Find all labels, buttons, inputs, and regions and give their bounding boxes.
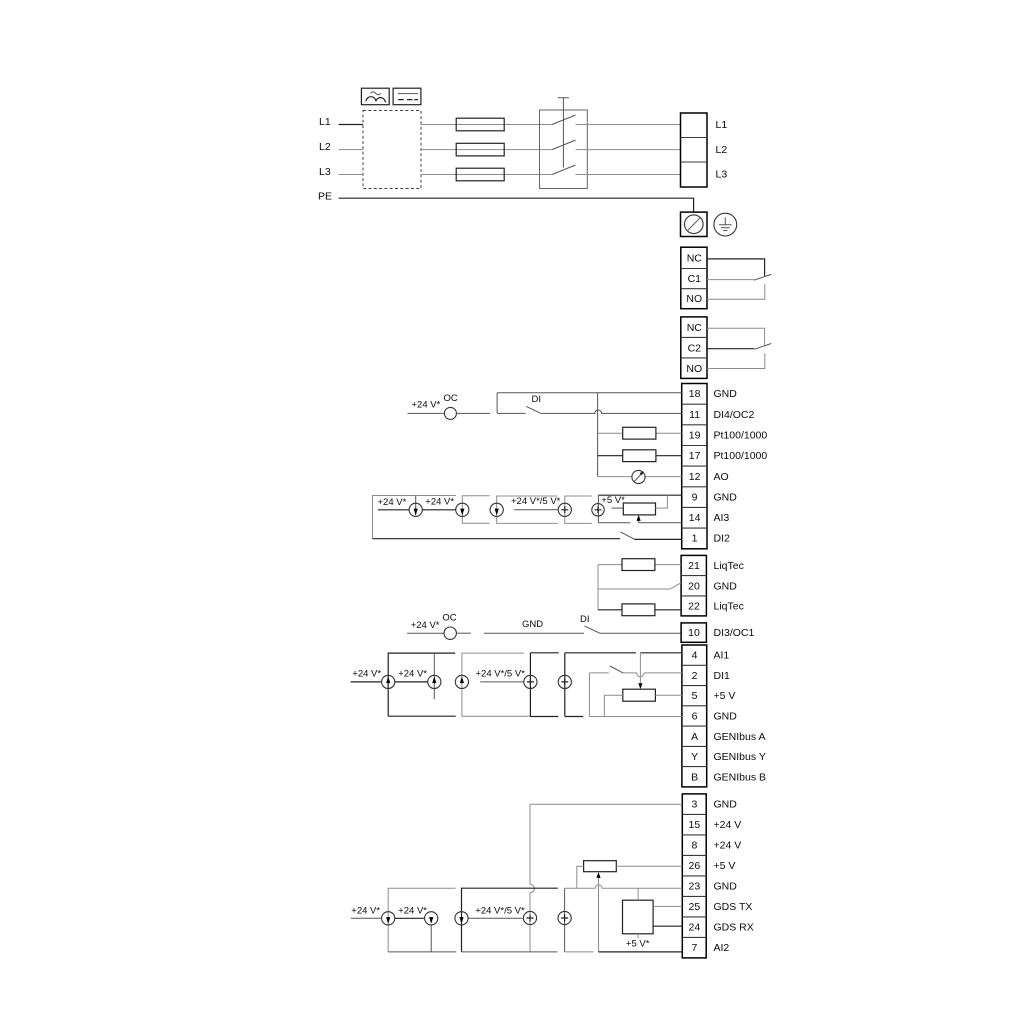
svg-text:+24 V*: +24 V* — [351, 906, 380, 917]
svg-text:17: 17 — [689, 450, 701, 462]
svg-text:+24 V*: +24 V* — [378, 497, 407, 508]
svg-text:GND: GND — [522, 619, 543, 630]
svg-text:2: 2 — [692, 670, 698, 682]
svg-text:+24 V: +24 V — [714, 819, 742, 831]
svg-text:+24 V*: +24 V* — [398, 906, 427, 917]
svg-text:DI1: DI1 — [714, 670, 731, 682]
svg-text:+24 V*: +24 V* — [398, 669, 427, 680]
svg-text:GDS RX: GDS RX — [714, 922, 754, 934]
svg-text:L2: L2 — [319, 141, 331, 153]
svg-text:A: A — [691, 731, 698, 743]
svg-text:L1: L1 — [716, 119, 728, 131]
svg-text:B: B — [691, 771, 698, 783]
svg-text:L2: L2 — [716, 144, 728, 156]
svg-text:4: 4 — [692, 650, 698, 662]
svg-text:GENIbus Y: GENIbus Y — [714, 751, 766, 763]
svg-text:NC: NC — [687, 252, 703, 264]
svg-text:19: 19 — [689, 430, 701, 442]
svg-text:OC: OC — [444, 393, 458, 404]
svg-text:GENIbus A: GENIbus A — [714, 731, 766, 743]
svg-text:+5 V*: +5 V* — [626, 938, 650, 949]
svg-text:1: 1 — [692, 533, 698, 545]
svg-text:AI1: AI1 — [714, 650, 730, 662]
svg-text:20: 20 — [688, 580, 700, 592]
svg-text:5: 5 — [692, 690, 698, 702]
svg-text:GDS TX: GDS TX — [714, 901, 753, 913]
svg-text:8: 8 — [691, 840, 697, 852]
svg-text:OC: OC — [442, 613, 456, 624]
svg-text:25: 25 — [689, 901, 701, 913]
svg-text:L1: L1 — [319, 116, 331, 128]
svg-text:23: 23 — [689, 881, 701, 893]
svg-text:NO: NO — [686, 293, 702, 305]
svg-text:6: 6 — [692, 711, 698, 723]
svg-text:+24 V: +24 V — [714, 840, 742, 852]
svg-text:AO: AO — [714, 471, 729, 483]
svg-text:GND: GND — [714, 491, 738, 503]
svg-text:14: 14 — [689, 512, 701, 524]
svg-text:11: 11 — [689, 409, 700, 421]
svg-text:DI4/OC2: DI4/OC2 — [714, 409, 755, 421]
svg-text:PE: PE — [318, 191, 332, 203]
svg-text:GND: GND — [714, 799, 738, 811]
svg-text:+24 V*: +24 V* — [425, 496, 454, 507]
svg-text:+24 V*: +24 V* — [411, 620, 440, 631]
svg-text:22: 22 — [688, 601, 700, 613]
svg-text:18: 18 — [689, 388, 701, 400]
svg-text:L3: L3 — [319, 166, 331, 178]
svg-text:AI3: AI3 — [714, 512, 730, 524]
svg-text:21: 21 — [688, 560, 700, 572]
svg-text:DI3/OC1: DI3/OC1 — [714, 627, 755, 639]
svg-text:GND: GND — [714, 580, 738, 592]
svg-text:GND: GND — [714, 881, 738, 893]
svg-text:GND: GND — [714, 711, 738, 723]
svg-text:+24 V*/5 V*: +24 V*/5 V* — [511, 496, 561, 507]
svg-text:L3: L3 — [716, 168, 728, 180]
svg-text:10: 10 — [688, 627, 700, 639]
svg-text:+24 V*/5 V*: +24 V*/5 V* — [476, 668, 526, 679]
svg-text:+5 V: +5 V — [714, 690, 736, 702]
svg-text:Pt100/1000: Pt100/1000 — [714, 430, 768, 442]
svg-text:AI2: AI2 — [714, 942, 730, 954]
svg-text:C1: C1 — [688, 273, 702, 285]
svg-text:9: 9 — [692, 491, 698, 503]
svg-text:+24 V*/5 V*: +24 V*/5 V* — [475, 906, 525, 917]
svg-text:GENIbus B: GENIbus B — [714, 771, 767, 783]
svg-text:7: 7 — [691, 942, 697, 954]
svg-text:LiqTec: LiqTec — [714, 560, 744, 572]
svg-text:LiqTec: LiqTec — [714, 601, 744, 613]
svg-text:GND: GND — [714, 388, 738, 400]
svg-text:Pt100/1000: Pt100/1000 — [714, 450, 768, 462]
svg-text:+24 V*: +24 V* — [352, 669, 381, 680]
svg-text:Y: Y — [691, 751, 698, 763]
svg-text:DI: DI — [532, 394, 542, 405]
svg-text:3: 3 — [691, 799, 697, 811]
svg-text:DI: DI — [580, 614, 590, 625]
svg-text:NC: NC — [687, 322, 703, 334]
svg-text:+5 V*: +5 V* — [601, 495, 625, 506]
svg-text:DI2: DI2 — [714, 533, 731, 545]
svg-text:26: 26 — [689, 860, 701, 872]
svg-text:NO: NO — [686, 363, 702, 375]
svg-text:15: 15 — [689, 819, 701, 831]
svg-text:12: 12 — [689, 471, 701, 483]
svg-text:C2: C2 — [688, 342, 702, 354]
svg-text:+5 V: +5 V — [714, 860, 736, 872]
svg-text:24: 24 — [689, 922, 701, 934]
svg-text:+24 V*: +24 V* — [412, 399, 441, 410]
